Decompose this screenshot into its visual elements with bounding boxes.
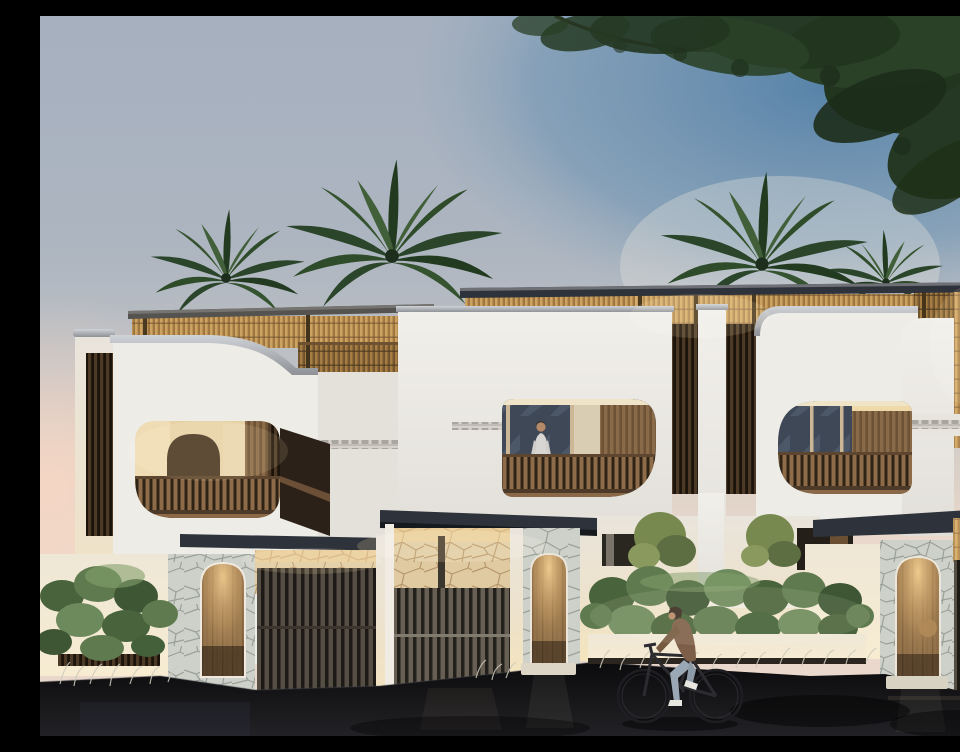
balcony-railing — [502, 457, 656, 490]
arched-door — [895, 556, 941, 680]
arched-door — [200, 562, 246, 678]
arched-door — [530, 553, 568, 668]
louver-panel — [724, 324, 756, 494]
balcony-middle — [502, 399, 656, 497]
door-step — [886, 676, 948, 689]
architectural-render — [40, 16, 960, 736]
slat-gate — [257, 568, 376, 704]
balcony-railing — [778, 455, 912, 486]
louver-panel — [86, 353, 113, 536]
frieze-band — [912, 420, 960, 429]
balcony-right — [778, 401, 912, 494]
balcony-railing — [135, 479, 280, 511]
door-step — [521, 663, 576, 675]
